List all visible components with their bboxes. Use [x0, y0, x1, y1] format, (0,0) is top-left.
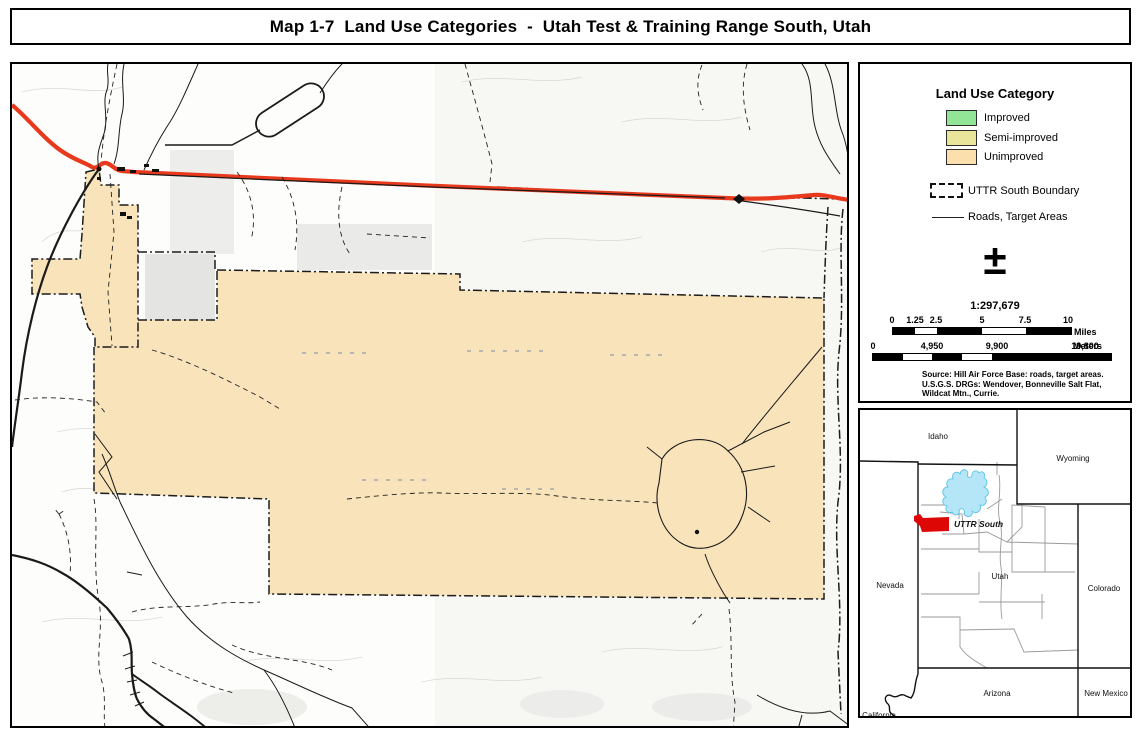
inset-state-label-california: California	[862, 711, 896, 716]
inset-state-label-colorado: Colorado	[1088, 584, 1121, 593]
inset-state-label-nevada: Nevada	[876, 581, 904, 590]
miles-unit: Miles	[1074, 327, 1097, 337]
meters-tick-labels: 0 4,950 9,900 19,800 Meters	[860, 341, 1130, 352]
inset-state-label-new-mexico: New Mexico	[1084, 689, 1128, 698]
legend-panel: Land Use Category Improved Semi-improved…	[858, 62, 1132, 403]
legend-title: Land Use Category	[860, 86, 1130, 101]
semi-improved-label: Semi-improved	[984, 132, 1058, 144]
inset-state-label-wyoming: Wyoming	[1056, 454, 1089, 463]
unimproved-label: Unimproved	[984, 151, 1043, 163]
boundary-label: UTTR South Boundary	[968, 185, 1079, 197]
meters-unit: Meters	[1073, 341, 1102, 351]
map-title: Map 1-7 Land Use Categories - Utah Test …	[270, 17, 871, 37]
inset-map-frame: Idaho Wyoming Nevada Utah Colorado Arizo…	[858, 408, 1132, 718]
inset-state-label-idaho: Idaho	[928, 432, 949, 441]
improved-swatch	[946, 110, 977, 126]
inset-map: Idaho Wyoming Nevada Utah Colorado Arizo…	[860, 410, 1130, 716]
miles-tick-labels: 0 1.25 2.5 5 7.5 10	[860, 315, 1130, 326]
miles-scale-bar	[892, 327, 1072, 335]
roads-label: Roads, Target Areas	[968, 211, 1067, 223]
unimproved-swatch	[946, 149, 977, 165]
uttr-south-label: UTTR South	[954, 519, 1003, 529]
semi-improved-swatch	[946, 130, 977, 146]
north-arrow: ±	[860, 240, 1130, 280]
improved-label: Improved	[984, 112, 1030, 124]
page: Map 1-7 Land Use Categories - Utah Test …	[0, 0, 1141, 731]
main-map	[12, 64, 847, 726]
boundary-symbol	[930, 183, 963, 198]
source-text: Source: Hill Air Force Base: roads, targ…	[922, 370, 1122, 399]
roads-symbol	[932, 217, 964, 218]
inset-state-label-arizona: Arizona	[983, 689, 1011, 698]
meters-scale-bar	[872, 353, 1112, 361]
scale-ratio: 1:297,679	[860, 300, 1130, 312]
main-map-frame	[10, 62, 849, 728]
map-title-bar: Map 1-7 Land Use Categories - Utah Test …	[10, 8, 1131, 45]
inset-state-label-utah: Utah	[992, 572, 1009, 581]
